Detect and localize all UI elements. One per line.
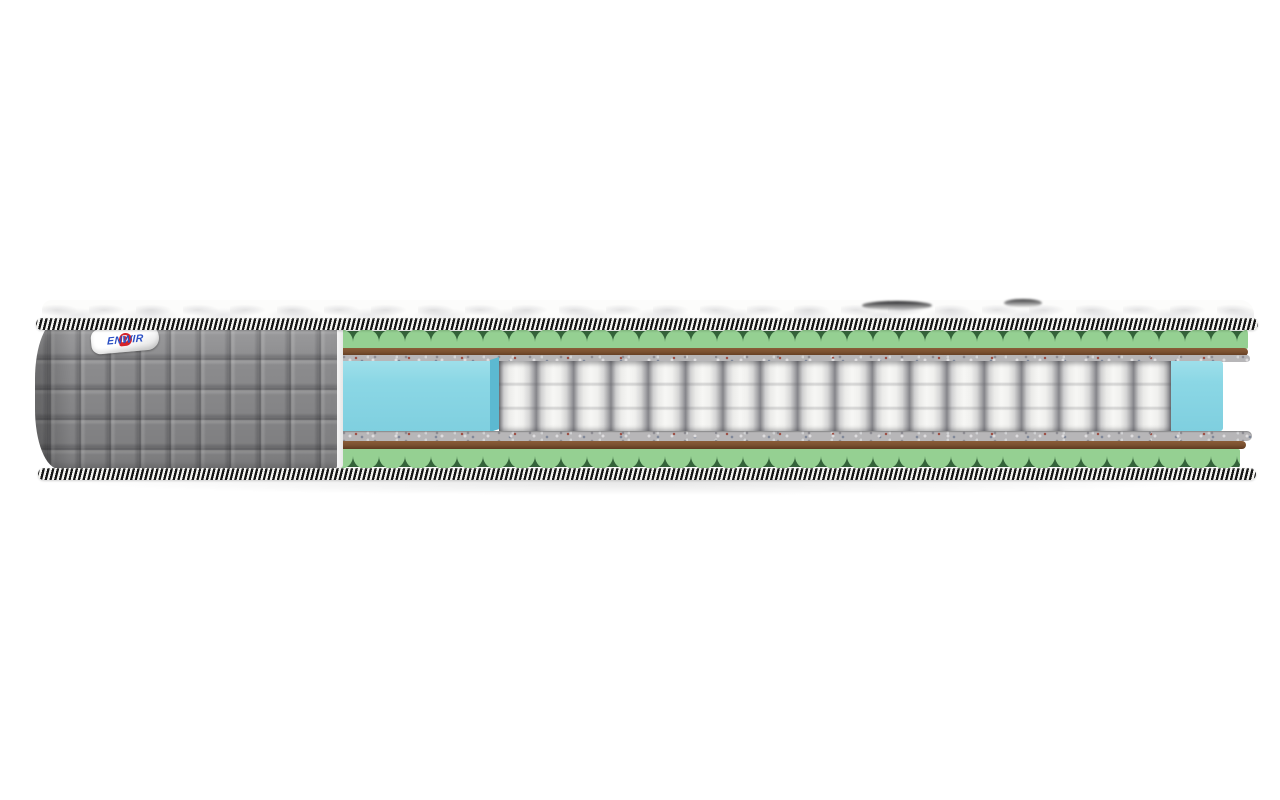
piping-top-edge — [36, 318, 1258, 330]
brand-logo-text: ENWIR — [107, 332, 144, 347]
coir-layer-bottom — [340, 441, 1246, 449]
top-panel-dark-mark — [862, 301, 932, 310]
edge-foam-right-face — [1171, 361, 1223, 431]
top-panel-dark-mark — [1004, 299, 1042, 307]
piping-bottom-edge — [38, 468, 1256, 480]
edge-foam-left-face — [342, 361, 490, 432]
mattress-product-photo: D ENWIR — [0, 0, 1280, 800]
quilted-side-cover: D ENWIR — [35, 319, 337, 469]
pocket-spring-core — [499, 361, 1171, 432]
edge-foam-left-side — [490, 357, 499, 432]
felt-layer-bottom — [340, 431, 1252, 441]
